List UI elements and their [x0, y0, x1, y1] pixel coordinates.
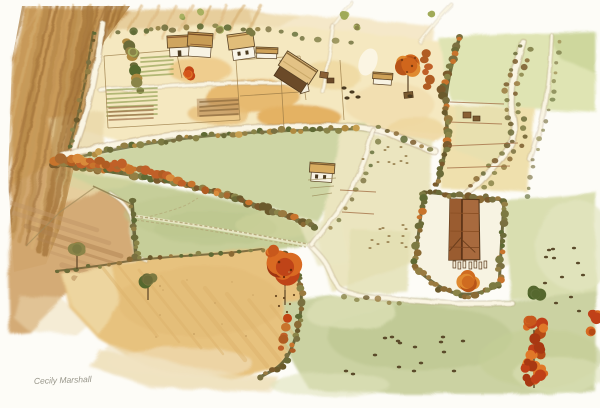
svg-text:Cecily Marshall: Cecily Marshall: [34, 374, 93, 386]
